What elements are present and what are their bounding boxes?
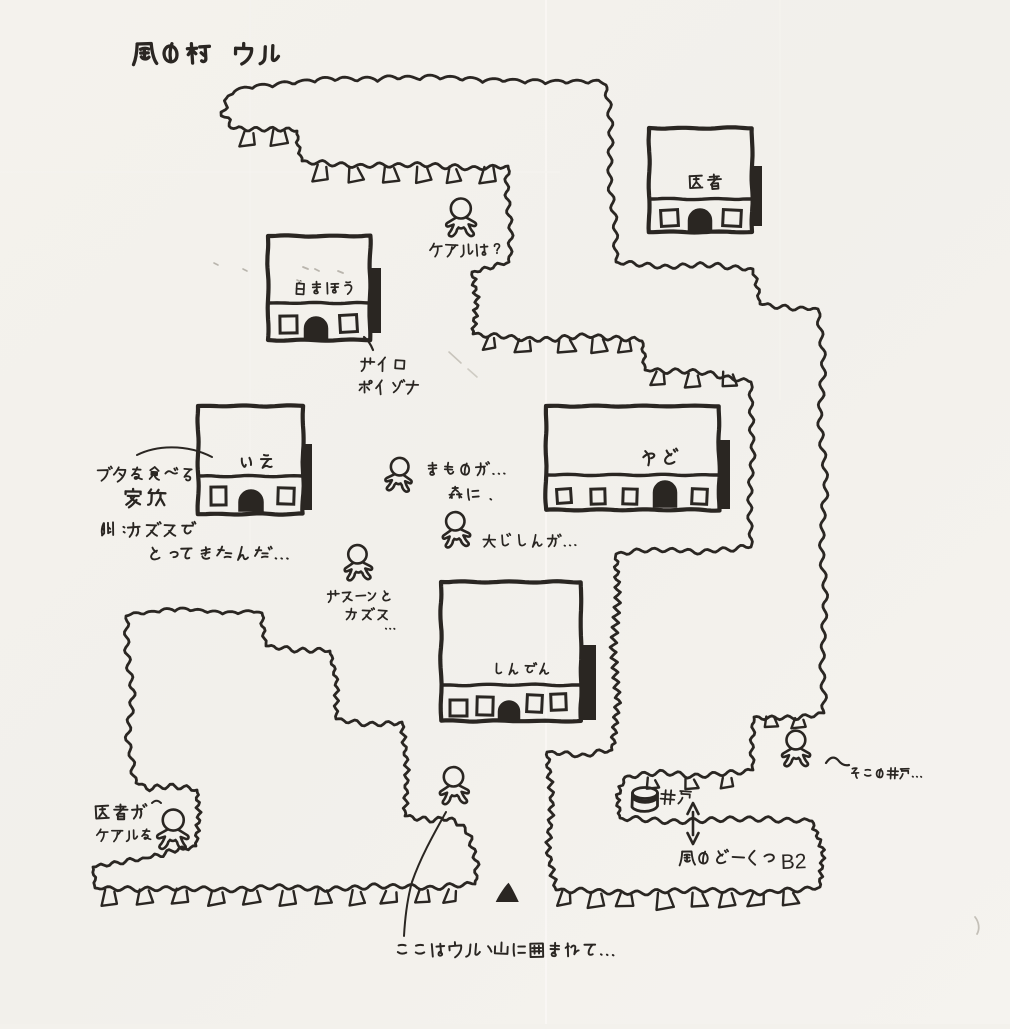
svg-text:B2: B2 <box>780 850 806 874</box>
